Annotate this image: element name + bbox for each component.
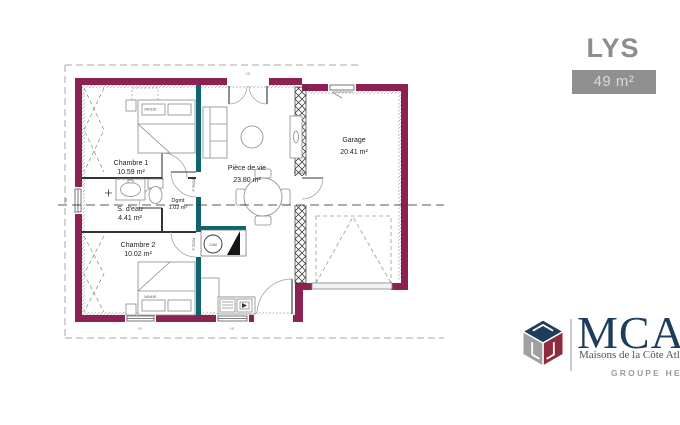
- door-tag-1: P 75/204: [192, 178, 196, 191]
- window-tag-1: VR: [138, 327, 143, 331]
- room-area-garage: 20.41 m²: [340, 149, 368, 156]
- garage-door: [312, 216, 392, 289]
- technical-closet: CUM: [201, 230, 246, 256]
- dim-label-left: 90: [64, 198, 68, 202]
- closet-marks: [84, 88, 104, 312]
- window-tag-entrance: VR: [246, 72, 251, 76]
- room-area-piece-de-vie: 23.80 m²: [233, 177, 261, 184]
- room-area-dgmt: 1.02 m²: [169, 205, 188, 211]
- room-area-chambre2: 10.02 m²: [124, 251, 152, 258]
- room-label-chambre1: Chambre 1: [114, 160, 149, 167]
- logo-group: GROUPE HEXA: [611, 368, 680, 378]
- bed-size-1: 140x190: [144, 108, 156, 112]
- model-title: LYS: [563, 33, 663, 64]
- logo-divider: [570, 319, 572, 371]
- area-badge: 49 m²: [572, 70, 656, 94]
- door-tag-3: P 75/204: [294, 171, 307, 175]
- room-label-garage: Garage: [342, 137, 365, 144]
- logo-tagline: Maisons de la Côte Atlantique: [579, 349, 680, 361]
- room-area-chambre1: 10.59 m²: [117, 169, 145, 176]
- cum-label: CUM: [209, 243, 217, 247]
- room-label-dgmt: Dgmt: [171, 198, 185, 204]
- room-label-piece-de-vie: Pièce de vie: [228, 165, 266, 172]
- floor-plan-page: { "header": { "title": "LYS", "area_badg…: [0, 0, 680, 425]
- room-label-sdeau: S. d'eau: [117, 206, 143, 213]
- door-tag-2: P 75/204: [192, 237, 196, 250]
- bathroom-fixtures: [116, 179, 163, 204]
- room-area-sdeau: 4.41 m²: [118, 215, 142, 222]
- floor-plan: CUM Chambre 1 10.59 m² S. d'eau 4.41 m² …: [50, 50, 460, 350]
- mca-logo-icon: [517, 317, 569, 369]
- window-tag-2: VR: [230, 327, 235, 331]
- kitchen: [201, 278, 255, 314]
- furniture-chambre1: [126, 88, 195, 153]
- room-label-chambre2: Chambre 2: [121, 242, 156, 249]
- furniture-chambre2: [126, 262, 195, 315]
- bed-size-2: 140x190: [144, 295, 156, 299]
